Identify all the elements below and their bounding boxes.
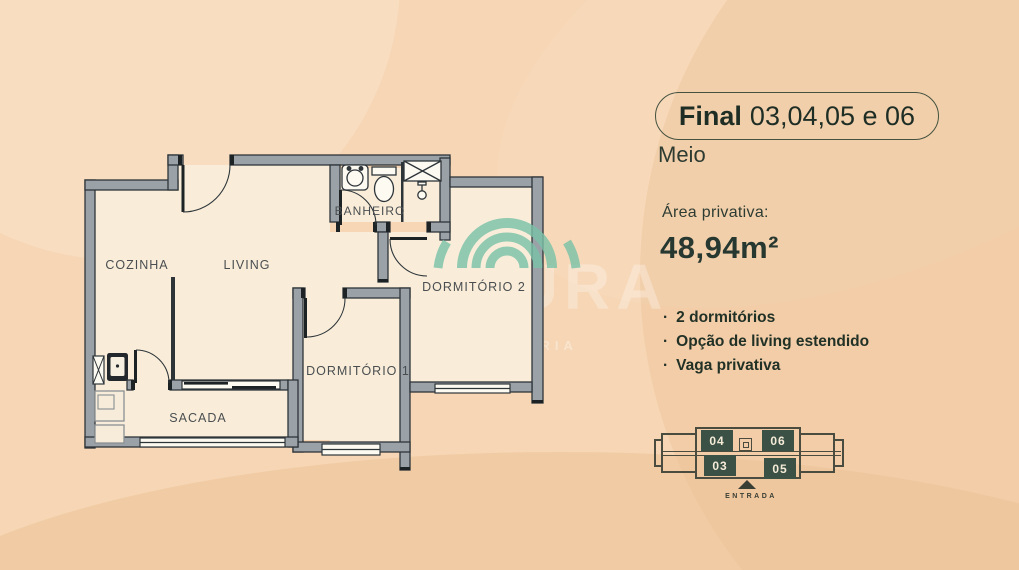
- half-wall: [171, 277, 175, 380]
- brand-arc-logo-icon: [432, 208, 582, 278]
- unit-06-badge: 06: [762, 430, 794, 451]
- toilet-icon: [372, 167, 396, 175]
- room-label-sacada: SACADA: [169, 411, 226, 425]
- feature-item: Opção de living estendido: [663, 330, 869, 354]
- floor-plan: COZINHA LIVING BANHEIRO DORMITÓRIO 2 DOR…: [80, 148, 550, 484]
- unit-03-badge: 03: [704, 455, 736, 476]
- room-label-banheiro: BANHEIRO: [335, 204, 406, 218]
- feature-item: Vaga privativa: [663, 354, 869, 378]
- entrance-label: ENTRADA: [653, 493, 849, 500]
- unit-04-badge: 04: [701, 430, 733, 451]
- feature-item: 2 dormitórios: [663, 306, 869, 330]
- page: AUGURA IMOBILIARIA: [0, 0, 1019, 570]
- room-label-dormitorio2: DORMITÓRIO 2: [422, 279, 526, 294]
- room-label-dormitorio1: DORMITÓRIO 1: [306, 363, 410, 378]
- unit-title-pill: Final 03,04,05 e 06: [655, 92, 939, 140]
- private-area-value: 48,94m²: [660, 230, 779, 266]
- feature-list: 2 dormitórios Opção de living estendido …: [663, 306, 869, 378]
- building-corridor: [661, 451, 841, 456]
- unit-title-numbers: 03,04,05 e 06: [750, 101, 915, 132]
- room-label-living: LIVING: [224, 258, 271, 272]
- unit-05-badge: 05: [764, 458, 796, 479]
- entrance-arrow-icon: [738, 480, 756, 489]
- floor-areas: [95, 165, 533, 442]
- unit-title-bold: Final: [679, 101, 742, 132]
- elevator-icon: [739, 438, 752, 451]
- unit-position-label: Meio: [658, 142, 706, 168]
- building-diagram: 04 06 03 05 ENTRADA: [653, 422, 849, 514]
- service-fixtures: [93, 353, 128, 443]
- private-area-label: Área privativa:: [662, 204, 769, 222]
- room-label-cozinha: COZINHA: [105, 258, 168, 272]
